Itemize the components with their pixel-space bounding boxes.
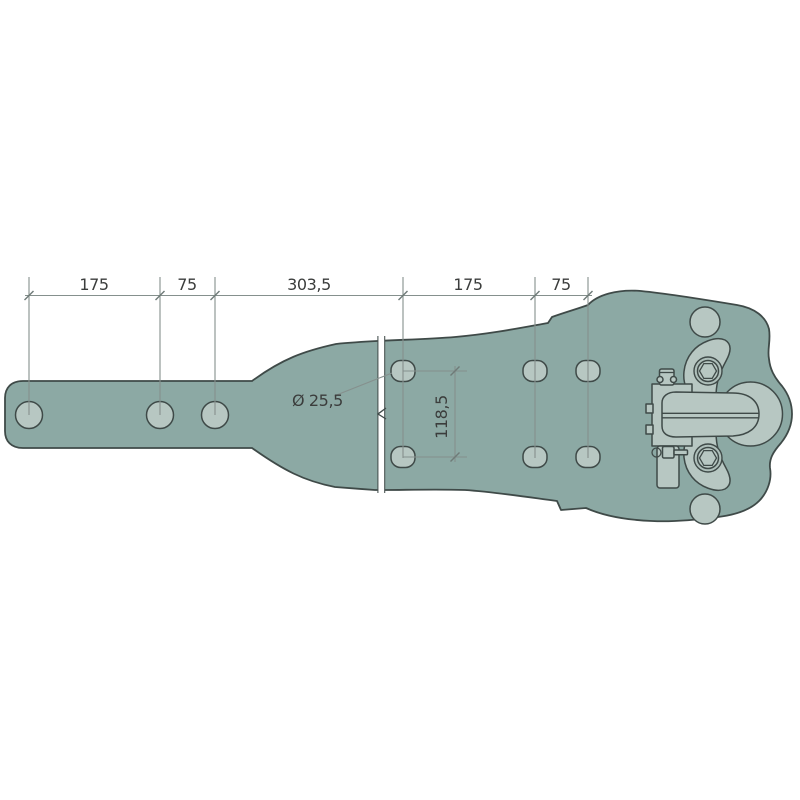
hex-bolt-upper: [694, 357, 722, 385]
mount-bracket-tab-1: [646, 404, 653, 413]
head-hole-top: [690, 307, 720, 337]
coupling-tongue: [662, 392, 759, 437]
dim-label-height-118-5: 118,5: [432, 395, 451, 439]
dim-label-175-right: 175: [453, 275, 482, 294]
drawbar-drawing: 175 75 303,5 175 75 118,5 Ø 25,5: [0, 0, 800, 800]
dim-label-75-left: 75: [177, 275, 197, 294]
technical-drawing-canvas: 175 75 303,5 175 75 118,5 Ø 25,5: [0, 0, 800, 800]
linch-pin-shaft: [674, 450, 688, 455]
mount-bracket-tab-2: [646, 425, 653, 434]
retainer-pin-ball-right: [671, 377, 677, 383]
retainer-pin-top: [657, 369, 677, 385]
hex-bolt-lower: [694, 444, 722, 472]
dim-label-75-right: 75: [551, 275, 571, 294]
dim-label-303-5: 303,5: [287, 275, 331, 294]
dim-label-diameter: Ø 25,5: [292, 391, 343, 410]
head-hole-bottom: [690, 494, 720, 524]
linch-pin-body: [663, 447, 675, 459]
retainer-pin-ball-left: [657, 377, 663, 383]
dim-label-175-left: 175: [79, 275, 108, 294]
